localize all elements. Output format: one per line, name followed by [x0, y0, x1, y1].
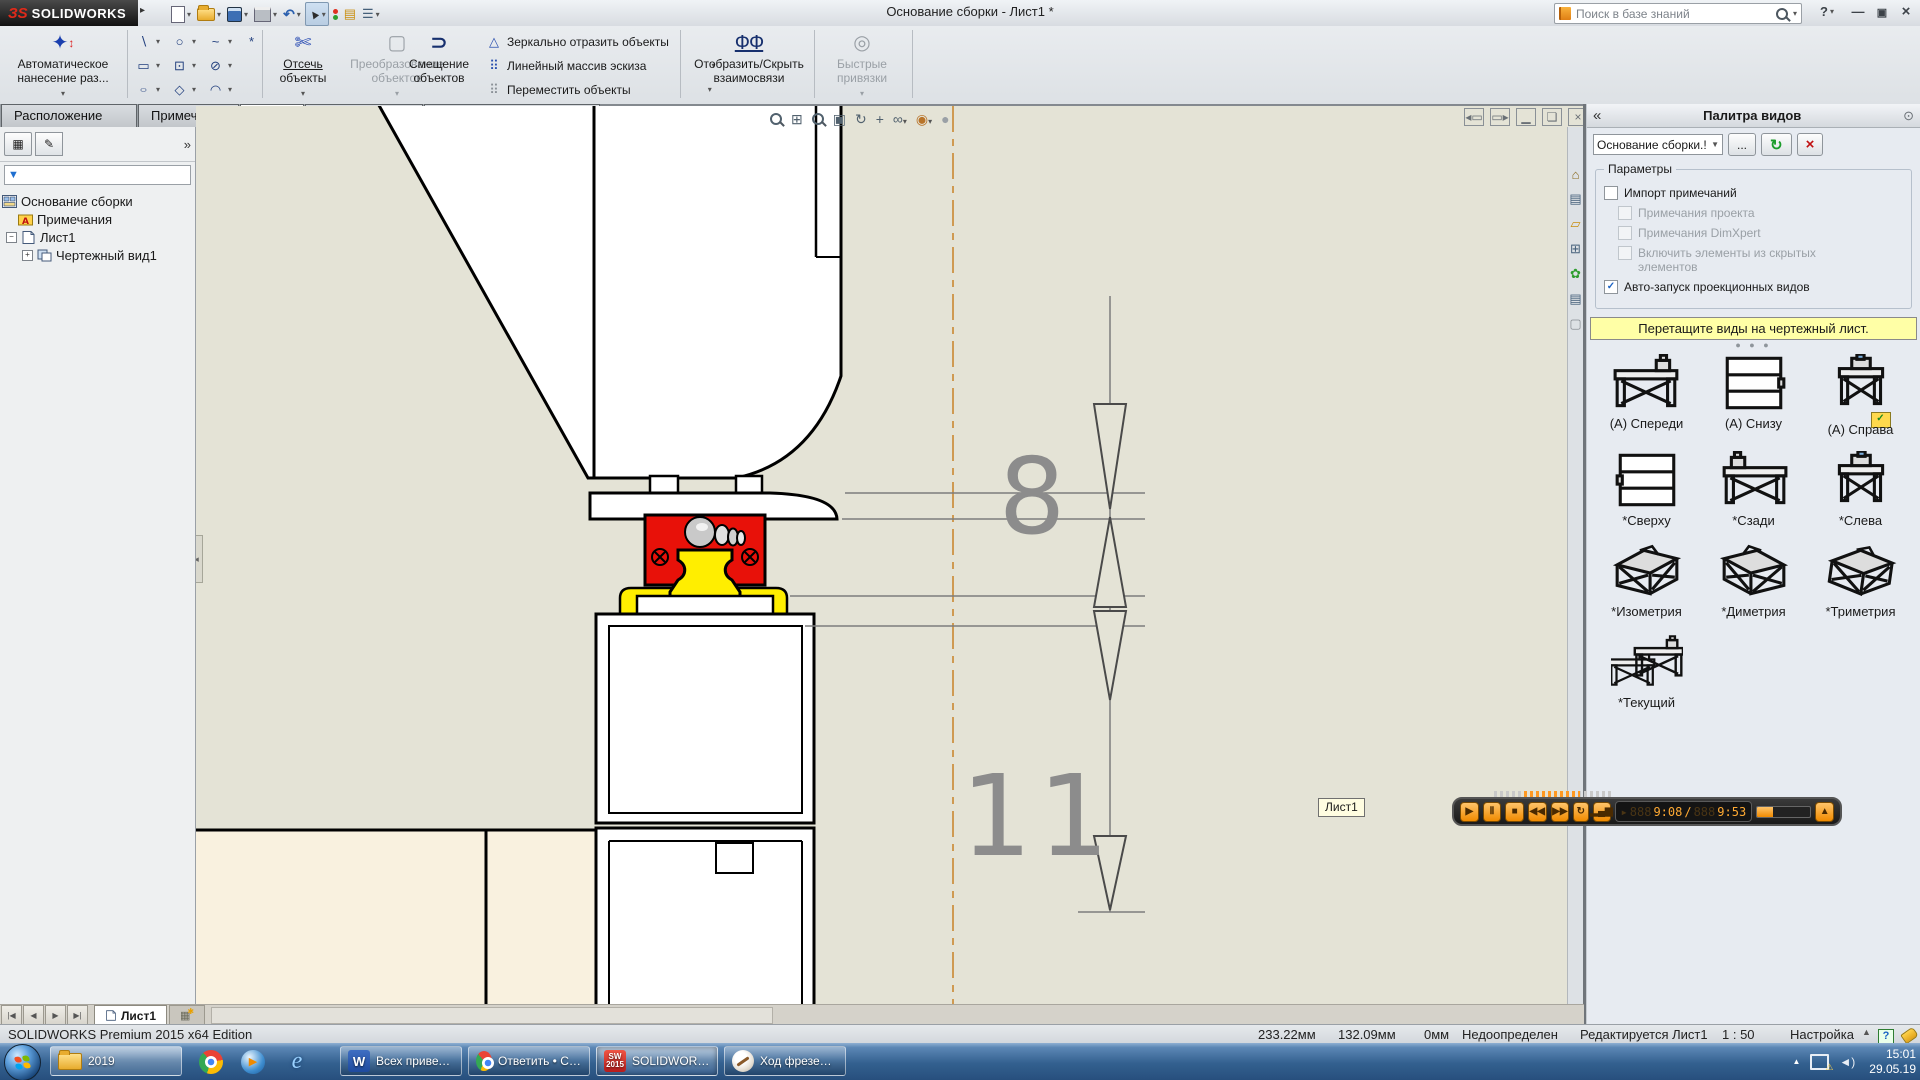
screen-recorder-bar: ▶ Ⅱ ■ ◀◀ ▶▶ ↻ ▂▄▆ ▸ 8889:08 / 8889:53 ▲ [1452, 797, 1842, 826]
doc-minimize-icon[interactable]: ▁ [1516, 108, 1536, 126]
tree-item-annotations[interactable]: A Примечания [2, 210, 193, 228]
column-outline[interactable] [596, 614, 814, 1004]
pan-icon[interactable]: + [876, 111, 884, 127]
taskbar-chrome-pinned[interactable] [196, 1048, 226, 1075]
solidworks-window: ЗS SOLIDWORKS ▸ ▾ ▾ ▾ ▾ ↶▾ ▲▾ ▤ ☰▾ Основ… [0, 0, 1920, 1080]
rail-base-plate [637, 596, 773, 614]
status-z-coordinate: 0мм [1424, 1027, 1449, 1042]
point-tool[interactable]: * [244, 32, 259, 51]
rail-carriage[interactable] [620, 515, 787, 614]
undo-button[interactable]: ↶▾ [281, 3, 303, 25]
view-item-front[interactable]: (A) Спереди [1593, 354, 1700, 437]
horizontal-scrollbar[interactable] [211, 1007, 773, 1024]
auto-start-projected-checkbox[interactable]: ✓Авто-запуск проекционных видов [1604, 280, 1903, 294]
media-player-icon: ▶ [241, 1050, 265, 1074]
spline-tool[interactable]: ~▾ [208, 32, 232, 51]
window-controls: —▣× [1846, 3, 1918, 20]
featuremanager-tab-icon[interactable]: ▦ [4, 132, 32, 156]
taskbar-paint-window[interactable]: Ход фрезера.png... [724, 1046, 846, 1076]
current-view-thumbnail [1611, 633, 1683, 691]
line-tool[interactable]: ∖▾ [136, 32, 160, 51]
left-view-thumbnail [1825, 451, 1897, 509]
view-palette-header: « Палитра видов ⊙ [1587, 104, 1920, 128]
status-definition-state: Недоопределен [1462, 1027, 1558, 1042]
recorder-progress-bar[interactable] [1756, 806, 1811, 818]
filter-icon: ▼ [8, 169, 19, 181]
folder-icon [58, 1053, 82, 1070]
sheet-tooltip: Лист1 [1318, 798, 1365, 817]
view-item-bottom[interactable]: (A) Снизу [1700, 354, 1807, 437]
view-palette-pane: « Палитра видов ⊙ Основание сборки.!▼ ..… [1586, 104, 1920, 1024]
tray-expand-icon[interactable]: ▲ [1792, 1057, 1800, 1066]
record-stop-button[interactable]: ■ [1505, 802, 1524, 822]
zoom-area-icon[interactable]: ⊞ [791, 111, 803, 128]
forward-button[interactable]: ▶▶ [1551, 802, 1570, 822]
solidworks-taskbar-icon: SW2015 [604, 1050, 626, 1072]
tree-item-root[interactable]: Основание сборки [2, 192, 193, 210]
show-relations-button[interactable]: ФФ Отобразить/Скрытьвзаимосвязи [690, 29, 808, 101]
brand-text: SOLIDWORKS [32, 6, 127, 21]
window-title: Основание сборки - Лист1 * [760, 4, 1180, 19]
knowledge-search-box[interactable]: Поиск в базе знаний ▾ [1554, 3, 1802, 24]
ie-icon: e [292, 1048, 303, 1075]
close-button[interactable]: × [1894, 3, 1918, 20]
minimize-button[interactable]: — [1846, 4, 1870, 19]
bottom-view-thumbnail [1718, 354, 1790, 412]
quick-snaps-button[interactable]: ◎ Быстрыепривязки ▾ [820, 29, 904, 101]
view-palette-icon[interactable]: ⊞ [1570, 241, 1581, 257]
smart-dimension-button[interactable]: ✦↕ Автоматическоенанесение раз... ▾ [4, 29, 122, 101]
doc-restore-icon[interactable]: ❏ [1542, 108, 1562, 126]
view-thumbnails-grid: (A) Спереди (A) Снизу ✓ (A) Справа *Свер… [1587, 350, 1920, 714]
heads-up-view-toolbar: ⊞ ▣ ↻ + ∞▾ ◉▾ ● [770, 108, 950, 130]
config-dropdown-arrow[interactable]: ▲ [1862, 1027, 1871, 1037]
taskbar-internet-explorer[interactable]: e [282, 1048, 312, 1075]
collapse-toggle-icon[interactable]: − [6, 232, 17, 243]
taskbar-solidworks-window[interactable]: SW2015 SOLIDWORKS Pre... [596, 1046, 718, 1076]
circle-tool[interactable]: ○▾ [172, 32, 196, 51]
view-item-trimetric[interactable]: *Триметрия [1807, 542, 1914, 619]
drawing-view-icon [37, 249, 52, 262]
add-sheet-tab[interactable]: ▦✱ [169, 1005, 205, 1025]
trim-entities-button[interactable]: ✄ Отсечьобъекты ▾ [268, 29, 338, 101]
smart-dimension-icon: ✦↕ [52, 29, 75, 57]
dimension-11[interactable]: 11 [961, 752, 1116, 882]
new-document-button[interactable]: ▾ [169, 3, 193, 25]
windows-flag-icon [14, 1055, 31, 1070]
drawing-graphics-area[interactable]: 8 11 [196, 106, 1569, 1004]
search-placeholder: Поиск в базе знаний [1576, 7, 1771, 21]
recorder-tick-strip-orange [1524, 791, 1580, 797]
polygon-tool[interactable]: ◇▾ [172, 80, 196, 99]
status-sheet-scale: 1 : 50 [1722, 1027, 1755, 1042]
loop-button[interactable]: ↻ [1573, 802, 1588, 822]
pane-left-icon[interactable]: ◂▭ [1464, 108, 1484, 126]
slot-tool[interactable]: ⊡▾ [172, 56, 196, 75]
front-view-thumbnail [1611, 354, 1683, 412]
sheet-icon [21, 231, 36, 244]
word-icon: W [348, 1050, 370, 1072]
system-tray: ▲ ◄) 15:01 29.05.19 [1792, 1043, 1916, 1080]
arc-tool[interactable]: ◠▾ [208, 80, 232, 99]
prev-sheet-button[interactable]: ◀ [23, 1005, 44, 1025]
offset-entities-button[interactable]: ⊃ Смещениеобъектов [400, 29, 478, 101]
restore-button[interactable]: ▣ [1870, 6, 1894, 19]
refresh-button[interactable]: ↻ [1761, 133, 1792, 156]
view-item-dimetric[interactable]: *Диметрия [1700, 542, 1807, 619]
save-button[interactable]: ▾ [225, 3, 250, 25]
chrome-icon [199, 1050, 223, 1074]
search-icon[interactable] [1776, 8, 1788, 20]
svg-text:A: A [22, 217, 29, 226]
status-configuration[interactable]: Настройка [1790, 1027, 1854, 1042]
status-x-coordinate: 233.22мм [1258, 1027, 1316, 1042]
title-bar: ЗS SOLIDWORKS ▸ ▾ ▾ ▾ ▾ ↶▾ ▲▾ ▤ ☰▾ Основ… [0, 0, 1920, 27]
quick-access-toolbar: ▾ ▾ ▾ ▾ ↶▾ ▲▾ ▤ ☰▾ [168, 2, 383, 26]
chrome-window-icon [476, 1051, 492, 1071]
document-selector-row: Основание сборки.!▼ ... ↻ × [1587, 128, 1920, 161]
edit-appearance-icon[interactable]: ◉▾ [916, 111, 932, 128]
linear-pattern-icon: ⠿ [486, 58, 502, 74]
help-button[interactable]: ?▾ [1820, 4, 1834, 19]
options-groupbox: Параметры Импорт примечаний Примечания п… [1595, 169, 1912, 309]
tab-view-layout[interactable]: Расположение вида [1, 104, 137, 127]
document-window-controls: ◂▭ ▭▸ ▁ ❏ × [1464, 108, 1588, 126]
select-tool-button[interactable]: ▲▾ [305, 2, 329, 26]
taskbar-word-window[interactable]: W Всех приветству... [340, 1046, 462, 1076]
menu-expand-arrow[interactable]: ▸ [140, 5, 145, 16]
options-group-label: Параметры [1604, 162, 1676, 176]
section-view-icon[interactable]: ▣ [833, 111, 846, 128]
table-section-faces [196, 830, 596, 1004]
dimxpert-annotations-checkbox: Примечания DimXpert [1618, 226, 1903, 240]
status-editing-sheet: Редактируется Лист1 [1580, 1027, 1708, 1042]
top-view-thumbnail [1611, 451, 1683, 509]
properties-icon[interactable]: ▤ [342, 3, 358, 25]
dimetric-view-thumbnail [1718, 542, 1790, 600]
offset-icon: ⊃ [431, 29, 448, 57]
search-dropdown-arrow[interactable]: ▾ [1793, 9, 1797, 18]
custom-properties-icon[interactable]: ▤ [1569, 291, 1581, 307]
move-entities-button[interactable]: ⠿Переместить объекты▾ [486, 80, 712, 99]
open-button[interactable]: ▾ [195, 3, 223, 25]
status-bar: SOLIDWORKS Premium 2015 x64 Edition 233.… [0, 1024, 1920, 1044]
head-bottom-plate[interactable] [590, 476, 837, 519]
eject-button[interactable]: ▲ [1815, 802, 1834, 822]
status-edition: SOLIDWORKS Premium 2015 x64 Edition [8, 1027, 252, 1042]
rotate-view-icon[interactable]: ↻ [855, 111, 867, 128]
ellipse2-tool[interactable]: ○▾ [136, 80, 160, 99]
view-item-current[interactable]: *Текущий [1593, 633, 1700, 710]
sheet-tab-bar: |◀ ◀ ▶ ▶| Лист1 ▦✱ [0, 1004, 1584, 1025]
tree-filter-input[interactable]: ▼ [4, 165, 191, 185]
windows-taskbar: 2019 ▶ e W Всех приветству... Ответить •… [0, 1043, 1920, 1080]
linear-pattern-button[interactable]: ⠿Линейный массив эскиза▾ [486, 56, 715, 75]
ellipse-tool[interactable]: ⊘▾ [208, 56, 232, 75]
view-item-left[interactable]: *Слева [1807, 451, 1914, 528]
view-item-top[interactable]: *Сверху [1593, 451, 1700, 528]
interference-check-icon[interactable] [331, 3, 340, 25]
file-explorer-icon[interactable]: ▱ [1571, 216, 1581, 232]
palette-splitter-handle[interactable]: ● ● ● [1587, 340, 1920, 350]
taskbar-media-player[interactable]: ▶ [238, 1048, 268, 1075]
record-play-button[interactable]: ▶ [1460, 802, 1479, 822]
trimetric-view-thumbnail [1825, 542, 1897, 600]
pin-icon[interactable]: ⊙ [1903, 108, 1914, 124]
glasses-icon: ФФ [735, 29, 763, 57]
taskbar-clock[interactable]: 15:01 29.05.19 [1869, 1047, 1916, 1077]
hide-show-items-icon[interactable]: ∞▾ [893, 111, 907, 127]
print-button[interactable]: ▾ [252, 3, 279, 25]
options-button[interactable]: ☰▾ [360, 3, 382, 25]
levels-button[interactable]: ▂▄▆ [1593, 802, 1611, 822]
resources-home-icon[interactable]: ⌂ [1572, 167, 1580, 182]
trim-icon: ✄ [295, 29, 312, 57]
taskbar-chrome-window[interactable]: Ответить • Станк... [468, 1046, 590, 1076]
paint-icon [732, 1050, 754, 1072]
tree-item-sheet[interactable]: − Лист1 [2, 228, 193, 246]
taskbar-folder-2019[interactable]: 2019 [50, 1046, 182, 1076]
back-view-thumbnail [1718, 451, 1790, 509]
mirror-icon: △ [486, 34, 502, 50]
hidden-items-checkbox: Включить элементы из скрытых элементов [1618, 246, 1903, 274]
view-item-back[interactable]: *Сзади [1700, 451, 1807, 528]
propertymanager-tab-icon[interactable]: ✎ [35, 132, 63, 156]
design-annotations-checkbox: Примечания проекта [1618, 206, 1903, 220]
builtin-libraries-icon[interactable]: ▢ [1569, 316, 1581, 332]
design-library-icon[interactable]: ▤ [1569, 191, 1581, 207]
solidworks-logo: ЗS SOLIDWORKS [0, 0, 138, 26]
tree-tab-strip: ▦ ✎ » [0, 127, 195, 162]
expand-toggle-icon[interactable]: + [22, 250, 33, 261]
drag-views-banner: Перетащите виды на чертежный лист. [1590, 317, 1917, 340]
ds-logo-icon: ЗS [8, 5, 28, 22]
status-y-coordinate: 132.09мм [1338, 1027, 1396, 1042]
recorder-time-display: ▸ 8889:08 / 8889:53 [1615, 801, 1753, 822]
drawing-doc-icon [2, 195, 17, 208]
rewind-button[interactable]: ◀◀ [1528, 802, 1547, 822]
isometric-view-thumbnail [1611, 542, 1683, 600]
appearances-icon[interactable]: ✿ [1570, 266, 1581, 282]
status-tag-icon[interactable] [1900, 1027, 1919, 1045]
import-annotations-checkbox[interactable]: Импорт примечаний [1604, 186, 1903, 200]
annotations-folder-icon: A [18, 213, 33, 226]
feature-manager-tree: ▦ ✎ » ▼ Основание сборки A Примечания − … [0, 127, 196, 1004]
view-item-right[interactable]: ✓ (A) Справа [1807, 354, 1914, 437]
quick-snaps-icon: ◎ [853, 29, 870, 57]
dimension-8[interactable]: 8 [999, 436, 1066, 558]
knowledge-book-icon [1559, 7, 1571, 20]
record-pause-button[interactable]: Ⅱ [1483, 802, 1502, 822]
apply-scene-icon[interactable]: ● [941, 111, 949, 127]
first-sheet-button[interactable]: |◀ [1, 1005, 22, 1025]
task-pane-tab-strip: ⌂ ▤ ▱ ⊞ ✿ ▤ ▢ [1567, 127, 1583, 1024]
start-button[interactable] [4, 1044, 41, 1080]
pane-title: Палитра видов [1601, 108, 1903, 123]
zoom-fit-icon[interactable] [770, 113, 782, 125]
last-sheet-button[interactable]: ▶| [67, 1005, 88, 1025]
volume-icon[interactable]: ◄) [1839, 1055, 1855, 1069]
right-view-thumbnail [1825, 354, 1897, 412]
browse-button[interactable]: ... [1728, 133, 1756, 156]
drawing-sheet: 8 11 [196, 106, 1569, 1004]
spindle-head-outline[interactable] [376, 106, 841, 478]
close-palette-button[interactable]: × [1797, 133, 1824, 156]
pane-right-icon[interactable]: ▭▸ [1490, 108, 1510, 126]
collapse-pane-icon[interactable]: « [1593, 107, 1601, 124]
network-status-icon[interactable] [1810, 1054, 1829, 1070]
sheet-tab-list1[interactable]: Лист1 [94, 1005, 167, 1025]
ribbon: ✦↕ Автоматическоенанесение раз... ▾ ∖▾ ○… [0, 26, 1920, 106]
document-combobox[interactable]: Основание сборки.!▼ [1593, 134, 1723, 155]
mirror-entities-button[interactable]: △Зеркально отразить объекты [486, 32, 669, 51]
next-sheet-button[interactable]: ▶ [45, 1005, 66, 1025]
tree-chevron-icon[interactable]: » [184, 137, 191, 152]
rectangle-tool[interactable]: ▭▾ [136, 56, 160, 75]
view-item-isometric[interactable]: *Изометрия [1593, 542, 1700, 619]
sheet-tab-icon [105, 1009, 117, 1022]
move-icon: ⠿ [486, 82, 502, 98]
zoom-icon[interactable] [812, 113, 824, 125]
tree-item-drawing-view[interactable]: + Чертежный вид1 [2, 246, 193, 264]
